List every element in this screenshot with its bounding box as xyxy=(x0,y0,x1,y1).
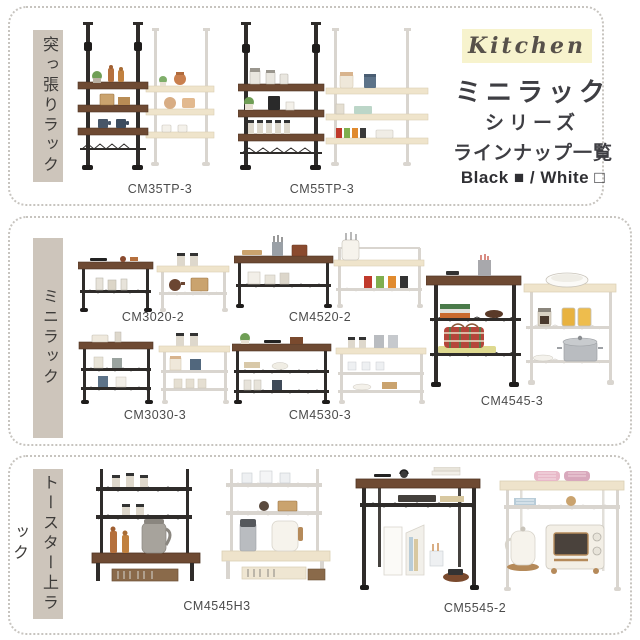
spice-bottles xyxy=(248,120,290,134)
two-tier-wide-pair-icon xyxy=(234,232,426,315)
model-label-cm35tp-3: CM35TP-3 xyxy=(100,182,220,196)
color-variant-legend: Black ■ / White □ xyxy=(447,168,619,188)
section-label-mini-rack: ミニラック xyxy=(33,238,63,438)
black-toaster-rack xyxy=(92,469,200,581)
black-tension-rack xyxy=(78,22,148,170)
product-image-cm3030-3 xyxy=(78,326,230,411)
model-label-cm5545-2: CM5545-2 xyxy=(415,601,535,615)
model-label-cm4520-2: CM4520-2 xyxy=(260,310,380,324)
page-subtitle-line2: ラインナップ一覧 xyxy=(443,138,623,165)
white-mini-rack xyxy=(524,273,616,385)
white-toaster-rack xyxy=(222,469,330,580)
white-tension-rack xyxy=(146,28,214,166)
page-subtitle-line1: シリーズ xyxy=(450,108,615,135)
model-label-cm55tp-3: CM55TP-3 xyxy=(262,182,382,196)
white-mini-rack xyxy=(159,333,230,404)
product-image-cm4545h3 xyxy=(82,465,334,602)
three-tier-tall-pair-icon xyxy=(426,254,618,392)
black-mini-rack xyxy=(79,332,153,404)
black-mini-rack xyxy=(234,235,333,308)
section-mini-rack: ミニラック xyxy=(8,216,632,446)
three-tier-wide-pair-icon xyxy=(232,326,428,406)
kitchen-badge: Kitchen xyxy=(462,29,592,63)
white-tension-rack xyxy=(326,28,428,166)
black-tension-rack xyxy=(238,22,324,170)
three-tier-small-pair-icon xyxy=(78,326,230,406)
black-mini-rack xyxy=(426,254,521,387)
product-image-cm35tp-3 xyxy=(70,22,248,179)
product-image-cm4530-3 xyxy=(232,326,428,411)
product-image-cm5545-2 xyxy=(354,467,630,604)
black-mini-rack xyxy=(78,256,153,312)
product-lineup-page: 突っ張りラック xyxy=(0,0,640,640)
product-image-cm3020-2 xyxy=(78,240,230,320)
product-image-cm55tp-3 xyxy=(238,22,436,179)
model-label-cm4530-3: CM4530-3 xyxy=(260,408,380,422)
model-label-cm4545-3: CM4545-3 xyxy=(452,394,572,408)
section-label-toaster-rack: トースター上ラック xyxy=(33,469,63,619)
tension-rack-pair-icon xyxy=(70,22,248,174)
page-title: ミニラック xyxy=(450,72,615,109)
white-appliance-rack xyxy=(500,471,624,591)
white-mini-rack xyxy=(334,232,424,308)
toaster-shelf-pair-icon xyxy=(82,465,334,597)
white-mini-rack xyxy=(157,253,229,312)
model-label-cm4545h3: CM4545H3 xyxy=(157,599,277,613)
section-toaster-rack: トースター上ラック xyxy=(8,455,632,635)
black-mini-rack xyxy=(232,333,331,404)
black-appliance-rack xyxy=(356,467,480,590)
tension-rack-wide-pair-icon xyxy=(238,22,436,174)
model-label-cm3030-3: CM3030-3 xyxy=(95,408,215,422)
product-image-cm4520-2 xyxy=(234,232,426,320)
model-label-cm3020-2: CM3020-2 xyxy=(93,310,213,324)
white-mini-rack xyxy=(336,335,426,404)
section-label-tension-rack: 突っ張りラック xyxy=(33,30,63,182)
appliance-rack-pair-icon xyxy=(354,467,630,599)
product-image-cm4545-3 xyxy=(426,254,618,397)
two-tier-small-pair-icon xyxy=(78,240,230,315)
